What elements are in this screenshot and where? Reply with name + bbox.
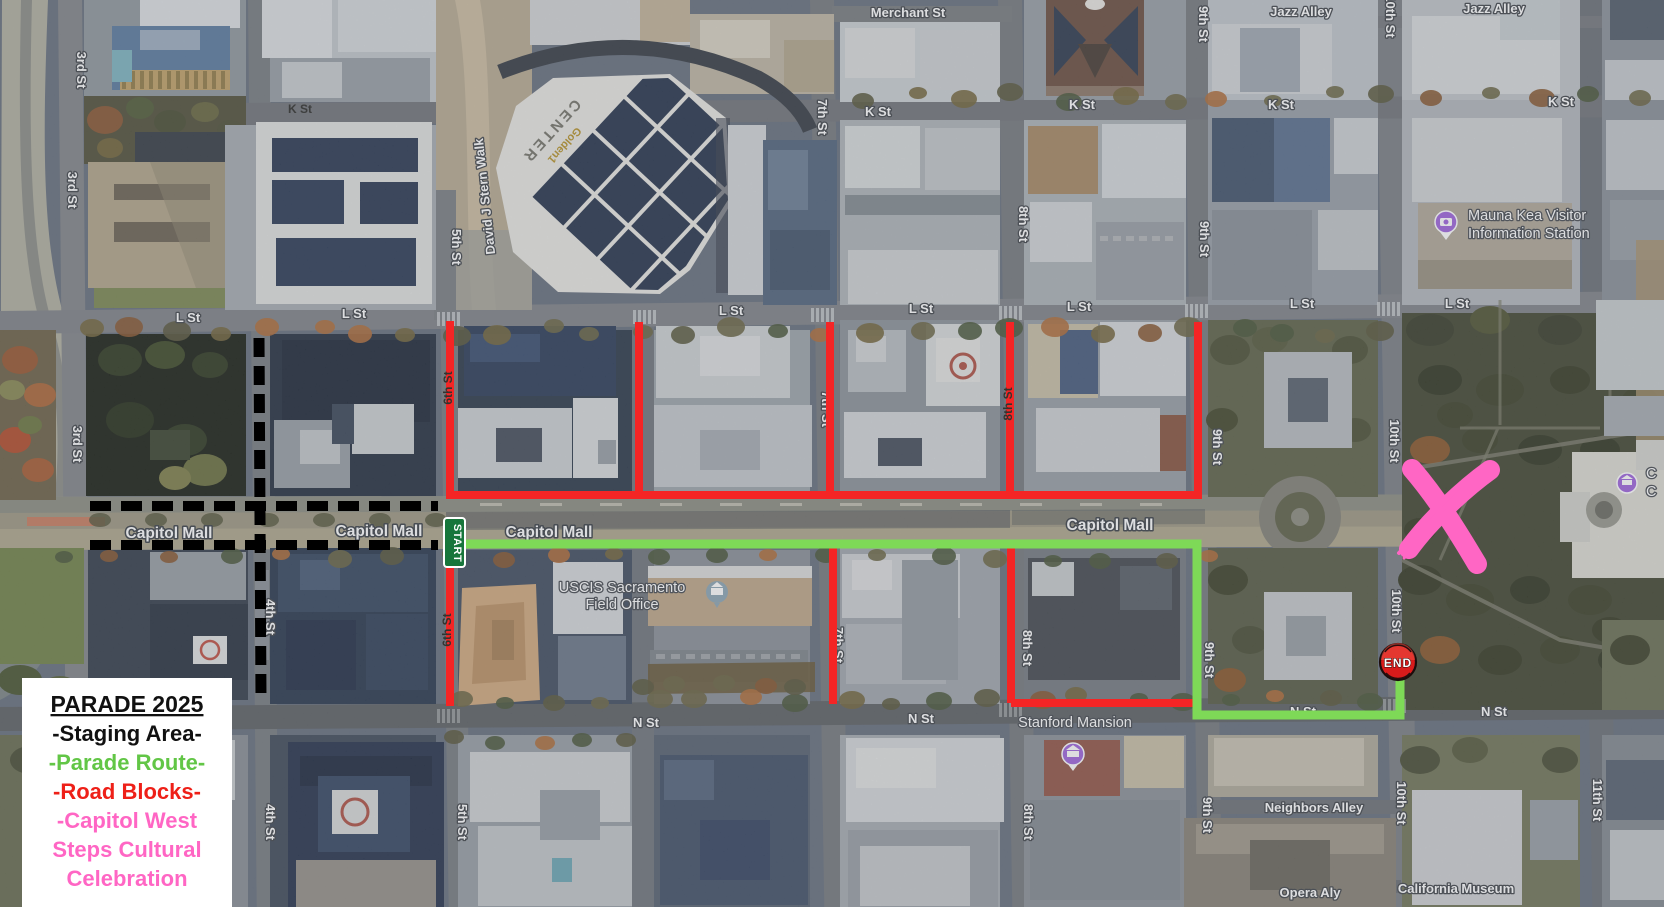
svg-text:Celebration: Celebration bbox=[66, 866, 187, 891]
svg-text:6th St: 6th St bbox=[441, 371, 455, 404]
svg-text:-Road Blocks-: -Road Blocks- bbox=[53, 779, 201, 804]
svg-text:PARADE 2025: PARADE 2025 bbox=[51, 691, 204, 717]
svg-text:6th St: 6th St bbox=[440, 613, 454, 646]
svg-text:-Capitol West: -Capitol West bbox=[57, 808, 198, 833]
svg-text:-Staging Area-: -Staging Area- bbox=[52, 721, 202, 746]
svg-text:END: END bbox=[1384, 656, 1412, 670]
svg-text:-Parade Route-: -Parade Route- bbox=[49, 750, 205, 775]
svg-text:8th St: 8th St bbox=[1001, 387, 1015, 420]
svg-text:Steps Cultural: Steps Cultural bbox=[52, 837, 201, 862]
svg-text:START: START bbox=[451, 524, 463, 562]
